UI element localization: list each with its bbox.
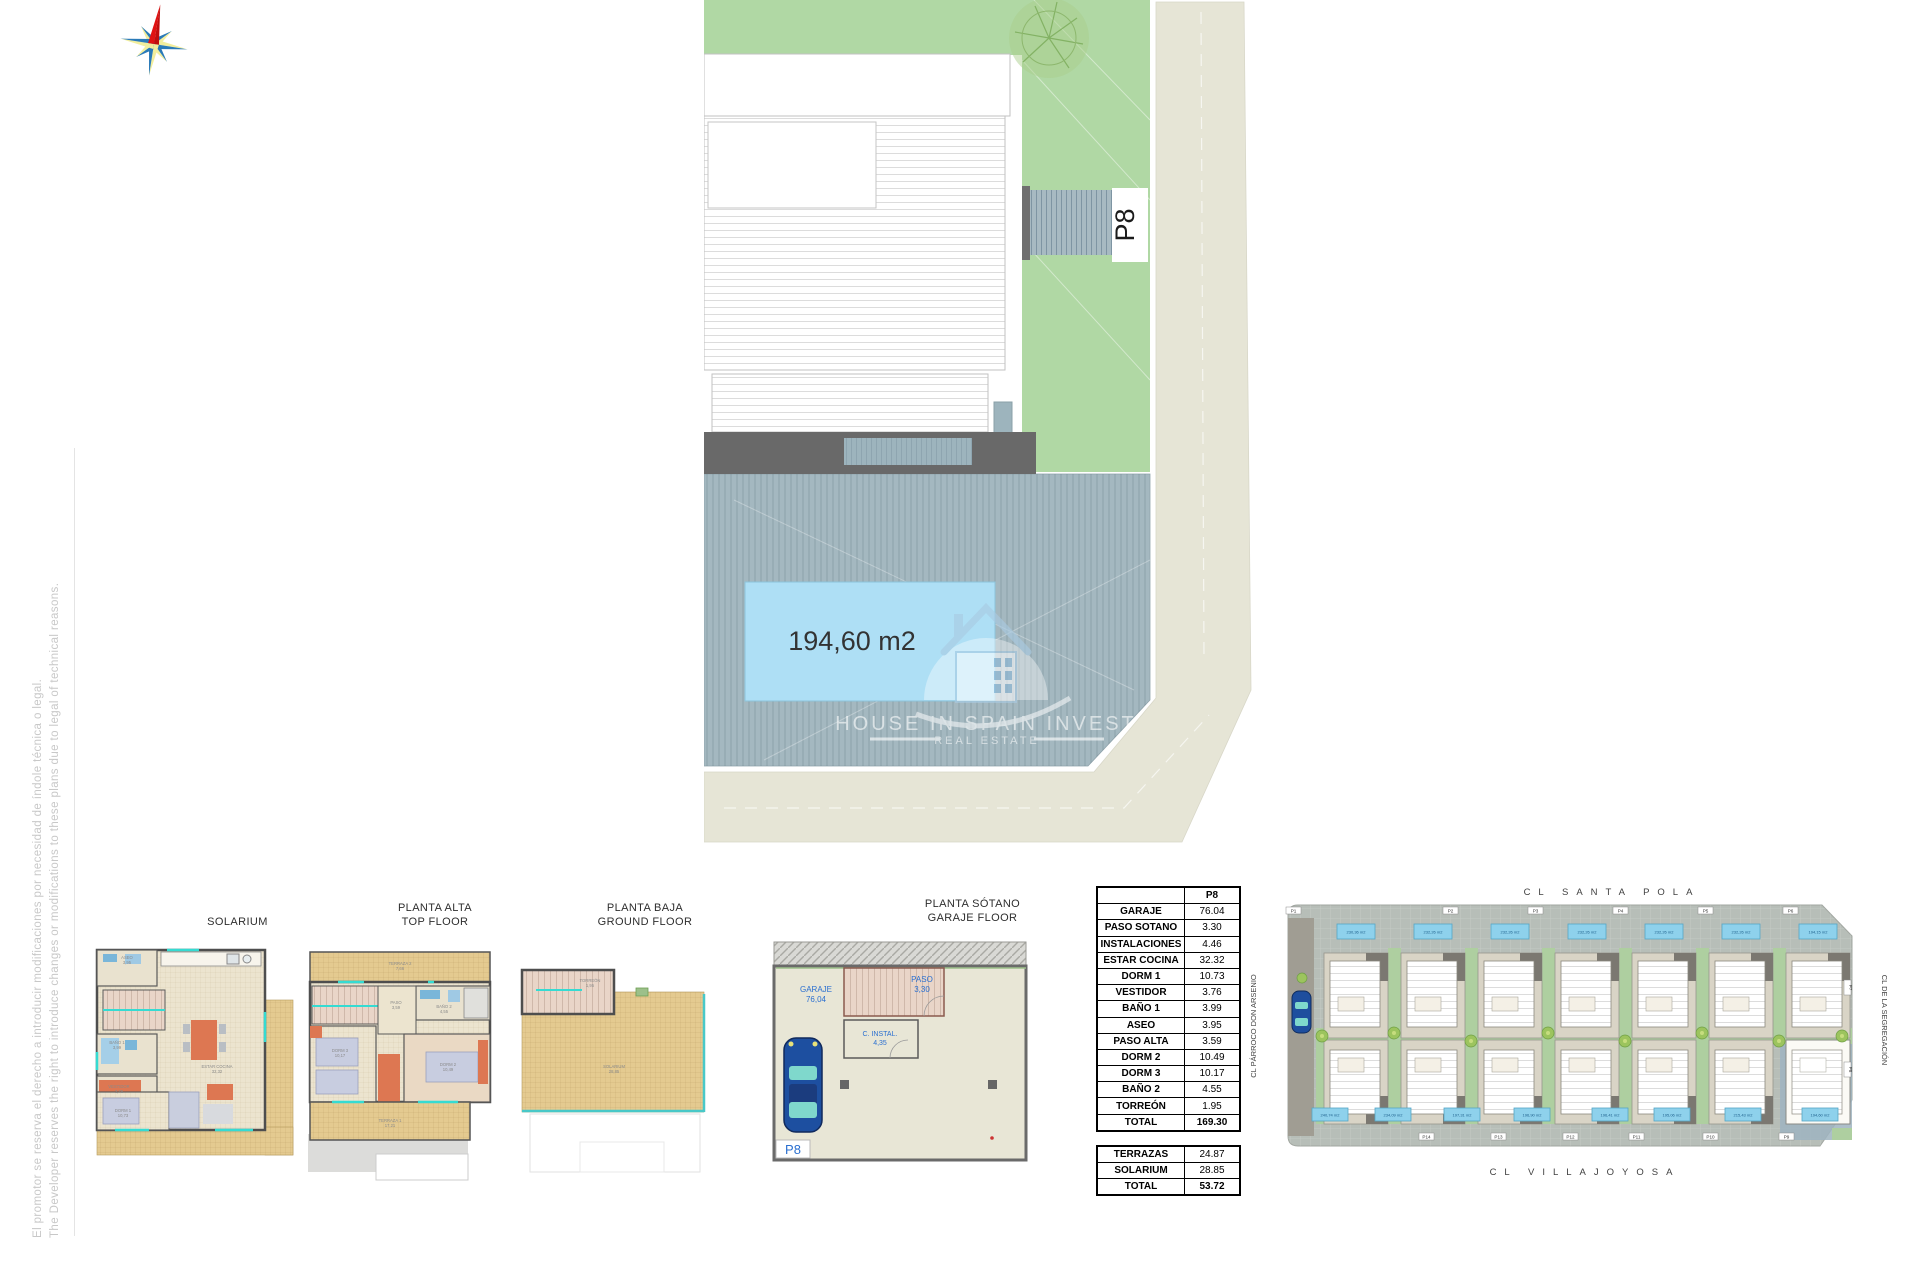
svg-text:76,04: 76,04 bbox=[806, 995, 827, 1004]
area-table-main: P8 GARAJE76.04 PASO SOTANO3.30 INSTALACI… bbox=[1096, 886, 1241, 1132]
svg-text:232,26 m2: 232,26 m2 bbox=[1578, 930, 1598, 935]
car-icon bbox=[784, 1038, 822, 1132]
svg-text:232,26 m2: 232,26 m2 bbox=[1424, 930, 1444, 935]
svg-text:197,31 m2: 197,31 m2 bbox=[1453, 1113, 1473, 1118]
svg-text:P14: P14 bbox=[1422, 1135, 1431, 1140]
plan3-title-en: GROUND FLOOR bbox=[555, 916, 735, 930]
plan1-title: SOLARIUM bbox=[150, 916, 325, 930]
svg-text:232,26 m2: 232,26 m2 bbox=[1501, 930, 1521, 935]
plan2-title-es: PLANTA ALTA bbox=[345, 902, 525, 916]
svg-text:P1: P1 bbox=[1291, 909, 1297, 914]
svg-text:28,85: 28,85 bbox=[609, 1069, 620, 1074]
svg-text:P2: P2 bbox=[1448, 909, 1454, 914]
svg-text:3,76: 3,76 bbox=[115, 1089, 124, 1094]
area-table-header: P8 bbox=[1185, 887, 1241, 904]
street-right-label: CL DE LA SEGREGACIÓN bbox=[1880, 975, 1889, 1066]
svg-text:GARAJE: GARAJE bbox=[800, 985, 832, 994]
svg-text:4,35: 4,35 bbox=[873, 1040, 887, 1047]
svg-text:C. INSTAL.: C. INSTAL. bbox=[863, 1031, 898, 1038]
legal-disclaimer: El promotor se reserva el derecho a intr… bbox=[30, 438, 64, 1238]
svg-text:234,09 m2: 234,09 m2 bbox=[1384, 1113, 1404, 1118]
plan2-title-en: TOP FLOOR bbox=[345, 916, 525, 930]
floor-plan-4: GARAJE 76,04 PASO 3,30 C. INSTAL. 4,35 P… bbox=[772, 940, 1030, 1168]
svg-text:7,66: 7,66 bbox=[396, 966, 405, 971]
street-bottom-label: CL VILLAJOYOSA bbox=[1490, 1167, 1681, 1178]
svg-text:196,41 m2: 196,41 m2 bbox=[1601, 1113, 1621, 1118]
porch-tab bbox=[994, 402, 1012, 436]
floor-plan-1: ASEO 3,95 BAÑO 1 3,99 VESTIDOR 3,76 DORM… bbox=[95, 942, 295, 1182]
roof-lower bbox=[712, 374, 988, 432]
roof-block bbox=[704, 54, 1010, 116]
driveway-curb bbox=[1022, 186, 1030, 260]
plan2-title: PLANTA ALTA TOP FLOOR bbox=[345, 902, 525, 929]
svg-text:195,06 m2: 195,06 m2 bbox=[1663, 1113, 1683, 1118]
svg-text:4,55: 4,55 bbox=[440, 1009, 449, 1014]
street-left-label: CL PÁRROCO DON ARSENIO bbox=[1249, 974, 1258, 1078]
compass-rose-icon bbox=[112, 2, 198, 86]
svg-text:P4: P4 bbox=[1618, 909, 1624, 914]
floor-plan-2: TERRAZA 2 7,66 BAÑO 2 4,55 PASO 3,59 DOR… bbox=[308, 942, 493, 1182]
svg-text:215,43 m2: 215,43 m2 bbox=[1734, 1113, 1754, 1118]
svg-text:P3: P3 bbox=[1533, 909, 1539, 914]
svg-text:10,73: 10,73 bbox=[118, 1113, 129, 1118]
plan4-plot-label: P8 bbox=[785, 1142, 801, 1157]
legal-disclaimer-es: El promotor se reserva el derecho a intr… bbox=[30, 438, 47, 1238]
svg-text:17,21: 17,21 bbox=[385, 1123, 396, 1128]
svg-text:PASO: PASO bbox=[911, 975, 933, 984]
development-overview-plan: CL SANTA POLA CL VILLAJOYOSA CL PÁRROCO … bbox=[1240, 878, 1890, 1208]
svg-text:P7: P7 bbox=[1848, 985, 1853, 991]
svg-text:240,74 m2: 240,74 m2 bbox=[1321, 1113, 1341, 1118]
plan-sheet: El promotor se reserva el derecho a intr… bbox=[0, 0, 1920, 1280]
svg-text:3,59: 3,59 bbox=[392, 1005, 401, 1010]
svg-text:P8: P8 bbox=[1848, 1067, 1853, 1073]
plan3-title: PLANTA BAJA GROUND FLOOR bbox=[555, 902, 735, 929]
roof-inner bbox=[708, 122, 876, 208]
svg-text:194,15 m2: 194,15 m2 bbox=[1809, 930, 1829, 935]
svg-text:194,60 m2: 194,60 m2 bbox=[1811, 1113, 1831, 1118]
svg-text:232,26 m2: 232,26 m2 bbox=[1732, 930, 1752, 935]
svg-text:P6: P6 bbox=[1788, 909, 1794, 914]
floor-plan-3: TORREÓN 1,95 SOLARIUM 28,85 bbox=[520, 942, 710, 1182]
svg-text:1,95: 1,95 bbox=[586, 983, 595, 988]
street-top-label: CL SANTA POLA bbox=[1524, 887, 1701, 898]
svg-text:3,99: 3,99 bbox=[113, 1045, 122, 1050]
lawn-top bbox=[704, 0, 1034, 55]
plan4-title: PLANTA SÓTANO GARAJE FLOOR bbox=[880, 898, 1065, 925]
area-table-exterior: TERRAZAS24.87 SOLARIUM28.85 TOTAL53.72 bbox=[1096, 1145, 1241, 1197]
svg-text:P12: P12 bbox=[1566, 1135, 1575, 1140]
area-table: P8 GARAJE76.04 PASO SOTANO3.30 INSTALACI… bbox=[1096, 886, 1236, 1196]
plot-label: P8 bbox=[1110, 208, 1140, 241]
svg-text:P9: P9 bbox=[1784, 1135, 1790, 1140]
svg-text:P5: P5 bbox=[1703, 909, 1709, 914]
svg-text:3,95: 3,95 bbox=[123, 960, 132, 965]
svg-text:3,30: 3,30 bbox=[914, 985, 930, 994]
pool-area-label: 194,60 m2 bbox=[788, 626, 916, 656]
plan4-title-es: PLANTA SÓTANO bbox=[880, 898, 1065, 912]
svg-text:196,90 m2: 196,90 m2 bbox=[1523, 1113, 1543, 1118]
legal-disclaimer-en: The Developer reserves the right to intr… bbox=[47, 438, 64, 1238]
margin-rule bbox=[74, 448, 75, 1236]
svg-text:P11: P11 bbox=[1633, 1135, 1641, 1140]
svg-text:10,17: 10,17 bbox=[335, 1053, 346, 1058]
svg-text:10,49: 10,49 bbox=[443, 1067, 454, 1072]
svg-text:P10: P10 bbox=[1706, 1135, 1715, 1140]
svg-text:230,36 m2: 230,36 m2 bbox=[1347, 930, 1367, 935]
logo-name: HOUSE IN SPAIN INVEST bbox=[835, 713, 1137, 735]
plan4-title-en: GARAJE FLOOR bbox=[880, 912, 1065, 926]
svg-text:232,26 m2: 232,26 m2 bbox=[1655, 930, 1675, 935]
top-houses bbox=[1324, 953, 1850, 1038]
svg-text:32,32: 32,32 bbox=[212, 1069, 223, 1074]
main-site-plan: P8 194,60 m2 HOUSE IN SPAIN INVEST REAL … bbox=[704, 0, 1264, 848]
logo-tagline: REAL ESTATE bbox=[934, 735, 1040, 747]
plan3-title-es: PLANTA BAJA bbox=[555, 902, 735, 916]
site-car-icon bbox=[1292, 991, 1311, 1033]
tree-icon bbox=[1009, 0, 1089, 78]
svg-text:P13: P13 bbox=[1494, 1135, 1503, 1140]
